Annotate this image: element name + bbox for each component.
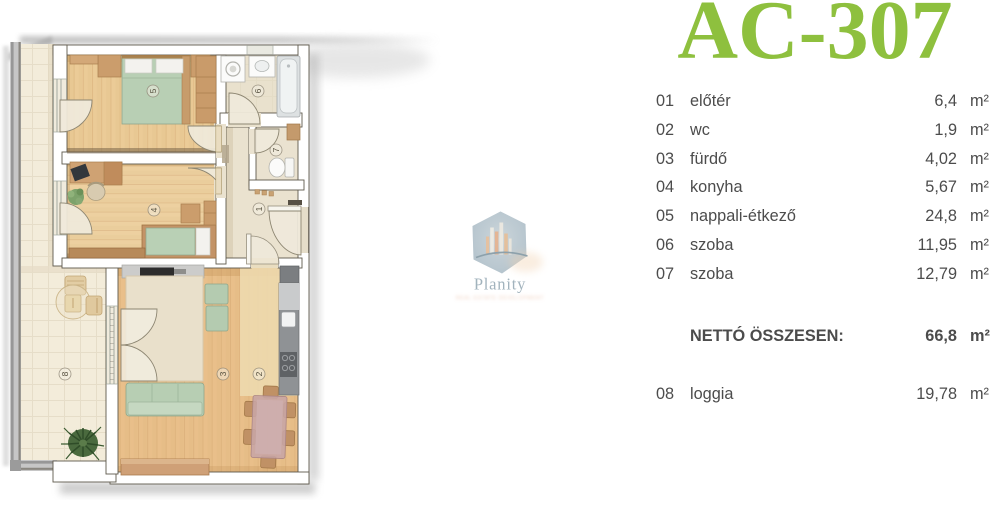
svg-text:előtér: előtér [690, 92, 731, 110]
svg-text:04: 04 [656, 178, 674, 196]
svg-text:m²: m² [970, 265, 990, 283]
svg-text:8: 8 [60, 371, 70, 376]
svg-text:6: 6 [253, 88, 263, 93]
svg-text:11,95: 11,95 [917, 236, 957, 254]
svg-text:07: 07 [656, 265, 674, 283]
svg-text:szoba: szoba [690, 236, 734, 254]
svg-text:nappali-étkező: nappali-étkező [690, 207, 796, 225]
svg-text:m²: m² [970, 207, 990, 225]
svg-text:24,8: 24,8 [925, 207, 957, 225]
svg-text:08: 08 [656, 385, 674, 403]
svg-text:5: 5 [148, 88, 158, 93]
svg-text:5,67: 5,67 [925, 178, 957, 196]
svg-text:AC-307: AC-307 [677, 0, 952, 77]
svg-text:konyha: konyha [690, 178, 743, 196]
svg-text:66,8: 66,8 [925, 327, 957, 345]
svg-text:4,02: 4,02 [925, 150, 957, 168]
svg-text:05: 05 [656, 207, 674, 225]
svg-text:m²: m² [970, 385, 990, 403]
svg-text:02: 02 [656, 121, 674, 139]
svg-text:03: 03 [656, 150, 674, 168]
svg-text:2: 2 [254, 371, 264, 376]
svg-text:7: 7 [271, 147, 281, 152]
svg-text:01: 01 [656, 92, 674, 110]
svg-text:3: 3 [218, 371, 228, 376]
svg-text:12,79: 12,79 [916, 265, 957, 283]
svg-text:m²: m² [970, 327, 990, 345]
svg-text:fürdő: fürdő [690, 150, 727, 168]
svg-text:1,9: 1,9 [934, 121, 957, 139]
svg-text:NETTÓ ÖSSZESEN:: NETTÓ ÖSSZESEN: [690, 326, 844, 345]
svg-text:6,4: 6,4 [934, 92, 957, 110]
svg-text:m²: m² [970, 121, 990, 139]
svg-text:m²: m² [970, 178, 990, 196]
svg-text:REAL ESTATE DEVELOPMENT: REAL ESTATE DEVELOPMENT [456, 296, 544, 302]
svg-text:Planity: Planity [474, 275, 526, 294]
svg-text:wc: wc [689, 121, 710, 139]
svg-text:m²: m² [970, 236, 990, 254]
svg-text:06: 06 [656, 236, 674, 254]
svg-text:4: 4 [149, 207, 159, 212]
svg-text:m²: m² [970, 150, 990, 168]
svg-text:19,78: 19,78 [916, 385, 957, 403]
svg-text:1: 1 [254, 206, 264, 211]
svg-text:szoba: szoba [690, 265, 734, 283]
svg-text:m²: m² [970, 92, 990, 110]
svg-text:loggia: loggia [690, 385, 734, 403]
